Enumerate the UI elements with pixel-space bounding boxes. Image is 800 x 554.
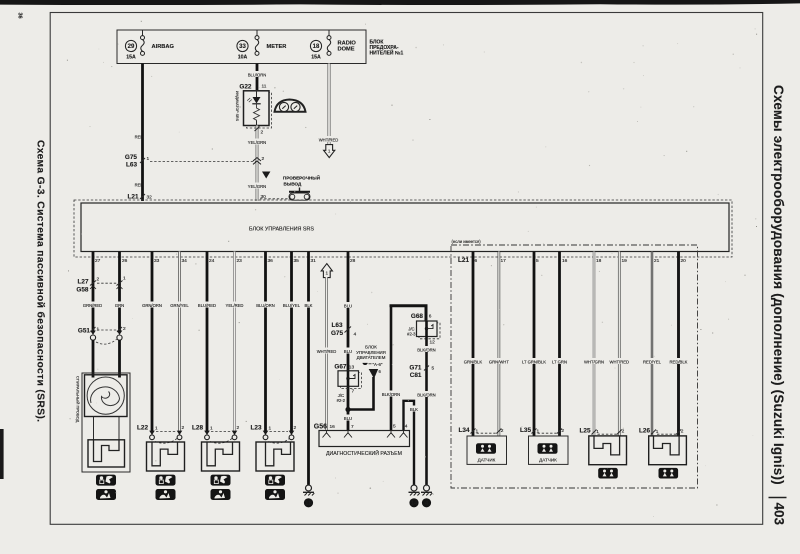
svg-text:G75: G75	[125, 154, 138, 161]
svg-text:13: 13	[349, 365, 355, 371]
svg-text:BLU/ORN: BLU/ORN	[248, 72, 267, 77]
svg-text:YEL/RED: YEL/RED	[226, 303, 244, 308]
svg-text:28: 28	[350, 258, 356, 264]
svg-text:1: 1	[269, 426, 272, 432]
svg-text:LT GRN: LT GRN	[552, 359, 567, 364]
svg-text:WHT/RED: WHT/RED	[610, 359, 630, 364]
svg-text:"А-6": "А-6"	[373, 362, 383, 367]
svg-text:7: 7	[352, 389, 355, 395]
svg-text:ПРОВЕРОЧНЫЙ: ПРОВЕРОЧНЫЙ	[283, 174, 320, 181]
svg-text:4: 4	[354, 332, 357, 338]
svg-text:403: 403	[772, 503, 787, 526]
svg-text:1: 1	[97, 327, 100, 333]
svg-text:2: 2	[97, 277, 100, 283]
svg-text:BLU: BLU	[344, 303, 352, 308]
svg-text:G58: G58	[76, 287, 89, 294]
svg-text:11: 11	[262, 84, 267, 90]
svg-text:12: 12	[430, 340, 436, 346]
svg-text:BLK: BLK	[410, 407, 418, 412]
svg-text:GRN/BLK: GRN/BLK	[464, 359, 483, 364]
svg-text:WHT/RED: WHT/RED	[319, 137, 339, 142]
svg-text:18: 18	[313, 44, 320, 50]
svg-text:ДАТЧИК: ДАТЧИК	[539, 458, 557, 463]
svg-text:БЛОК: БЛОК	[365, 345, 377, 350]
svg-text:2: 2	[681, 429, 684, 435]
svg-text:19: 19	[622, 258, 628, 264]
svg-text:27: 27	[95, 258, 101, 264]
svg-text:Схемы электрооборудования (доп: Схемы электрооборудования (дополнение) (…	[771, 85, 786, 485]
svg-text:1: 1	[123, 276, 126, 282]
svg-text:L25: L25	[579, 428, 590, 435]
svg-text:24: 24	[209, 258, 215, 264]
svg-text:4: 4	[405, 424, 408, 430]
svg-text:1: 1	[147, 156, 150, 162]
svg-text:15A: 15A	[311, 55, 321, 61]
svg-text:LT GRN/BLK: LT GRN/BLK	[522, 359, 546, 364]
svg-text:L28: L28	[192, 425, 203, 432]
svg-text:36: 36	[268, 258, 274, 264]
svg-text:L21: L21	[127, 194, 138, 201]
svg-text:BLU/YEL: BLU/YEL	[283, 303, 301, 308]
svg-text:16: 16	[562, 258, 568, 264]
svg-text:G67: G67	[334, 364, 347, 371]
svg-text:14: 14	[411, 501, 418, 507]
svg-text:36: 36	[17, 13, 23, 19]
svg-text:G68: G68	[411, 313, 424, 320]
svg-text:Схема G-3. Система пассивной б: Схема G-3. Система пассивной безопасност…	[35, 140, 47, 422]
svg-text:2: 2	[123, 326, 126, 332]
svg-text:18: 18	[305, 501, 312, 507]
svg-text:26: 26	[122, 258, 128, 264]
svg-text:ДВИГАТЕЛЕМ: ДВИГАТЕЛЕМ	[357, 355, 386, 360]
svg-text:RED: RED	[135, 135, 144, 140]
svg-text:1: 1	[210, 426, 213, 432]
svg-text:2: 2	[294, 425, 297, 431]
svg-text:L23: L23	[250, 425, 261, 432]
svg-text:ВЫВОД: ВЫВОД	[284, 182, 303, 187]
svg-text:#2-3: #2-3	[407, 332, 416, 337]
svg-text:ДИАГНОСТИЧЕСКИЙ РАЗЪЕМ: ДИАГНОСТИЧЕСКИЙ РАЗЪЕМ	[326, 449, 402, 457]
svg-text:L63: L63	[331, 322, 342, 329]
svg-text:УПРАВЛЕНИЯ: УПРАВЛЕНИЯ	[356, 350, 386, 355]
svg-text:BLK/ORN: BLK/ORN	[382, 392, 400, 397]
svg-text:23: 23	[237, 258, 243, 264]
svg-text:ДАТЧИК: ДАТЧИК	[478, 458, 496, 463]
svg-text:33: 33	[239, 44, 246, 50]
svg-text:G71: G71	[409, 365, 422, 372]
svg-text:33: 33	[154, 258, 160, 264]
svg-text:YEL/GRN: YEL/GRN	[248, 140, 266, 145]
svg-text:BLU: BLU	[344, 349, 352, 354]
svg-text:16: 16	[330, 424, 336, 430]
svg-text:31: 31	[311, 258, 317, 264]
svg-text:#2-2: #2-2	[337, 398, 346, 403]
svg-text:7: 7	[351, 424, 354, 430]
svg-text:GRN/ORN: GRN/ORN	[142, 303, 162, 308]
svg-text:WHT/RED: WHT/RED	[317, 349, 337, 354]
svg-text:L21: L21	[458, 257, 469, 264]
svg-text:ИНДИКАТОР SRS: ИНДИКАТОР SRS	[235, 91, 239, 122]
svg-text:GRN: GRN	[115, 303, 124, 308]
svg-text:GRN/WHT: GRN/WHT	[489, 359, 509, 364]
svg-text:RED/YEL: RED/YEL	[643, 359, 662, 364]
svg-text:L22: L22	[137, 425, 148, 432]
svg-text:L26: L26	[639, 428, 650, 435]
svg-text:БЛОК УПРАВЛЕНИЯ SRS: БЛОК УПРАВЛЕНИЯ SRS	[249, 227, 314, 233]
svg-text:15A: 15A	[126, 55, 136, 61]
svg-text:1: 1	[328, 149, 331, 154]
svg-text:GRN/YEL: GRN/YEL	[170, 303, 189, 308]
svg-text:10A: 10A	[238, 55, 248, 61]
svg-text:BLU/RED: BLU/RED	[198, 303, 216, 308]
svg-text:1: 1	[326, 271, 329, 276]
svg-text:L35: L35	[520, 427, 531, 434]
svg-text:RED: RED	[135, 183, 144, 188]
svg-text:BLU: BLU	[344, 416, 352, 421]
svg-text:BLU/ORN: BLU/ORN	[256, 303, 275, 308]
svg-text:(если имеется): (если имеется)	[452, 239, 482, 244]
svg-text:5: 5	[432, 366, 435, 372]
svg-text:1: 1	[155, 426, 158, 432]
svg-text:L34: L34	[458, 427, 469, 434]
svg-text:2: 2	[622, 429, 625, 435]
svg-text:34: 34	[182, 258, 188, 264]
svg-text:METER: METER	[267, 44, 287, 50]
svg-text:2: 2	[261, 130, 264, 136]
svg-text:YEL/GRN: YEL/GRN	[248, 184, 266, 189]
svg-text:RED/BLK: RED/BLK	[670, 359, 688, 364]
svg-text:DOME: DOME	[338, 47, 355, 53]
svg-text:5: 5	[393, 424, 396, 430]
svg-text:18: 18	[596, 258, 602, 264]
svg-text:2: 2	[182, 425, 185, 431]
svg-text:35: 35	[294, 258, 300, 264]
svg-text:C81: C81	[410, 372, 422, 379]
svg-text:GRN/RED: GRN/RED	[83, 303, 102, 308]
svg-text:G51: G51	[78, 328, 91, 335]
svg-text:6: 6	[429, 314, 432, 320]
svg-text:НИТЕЛЕЙ №1: НИТЕЛЕЙ №1	[370, 49, 404, 57]
svg-text:2: 2	[262, 156, 265, 162]
svg-text:29: 29	[128, 44, 135, 50]
svg-text:G22: G22	[239, 84, 252, 91]
svg-text:BLK: BLK	[305, 303, 313, 308]
svg-text:5: 5	[536, 258, 539, 264]
svg-text:BLK/ORN: BLK/ORN	[417, 347, 435, 352]
svg-text:21: 21	[654, 258, 660, 264]
svg-text:20: 20	[681, 258, 687, 264]
svg-text:2: 2	[237, 425, 240, 431]
svg-text:WHT/GRN: WHT/GRN	[584, 359, 604, 364]
svg-text:G56: G56	[314, 424, 327, 431]
svg-text:17: 17	[501, 258, 507, 264]
svg-text:СПИРАЛЬНЫЙ ПРОВОД: СПИРАЛЬНЫЙ ПРОВОД	[76, 376, 81, 423]
svg-text:L63: L63	[126, 162, 137, 169]
svg-text:AIRBAG: AIRBAG	[152, 44, 175, 50]
svg-text:G75: G75	[331, 330, 344, 337]
svg-text:L27: L27	[77, 279, 88, 286]
svg-text:BLK/ORN: BLK/ORN	[417, 392, 435, 397]
svg-text:6: 6	[475, 258, 478, 264]
